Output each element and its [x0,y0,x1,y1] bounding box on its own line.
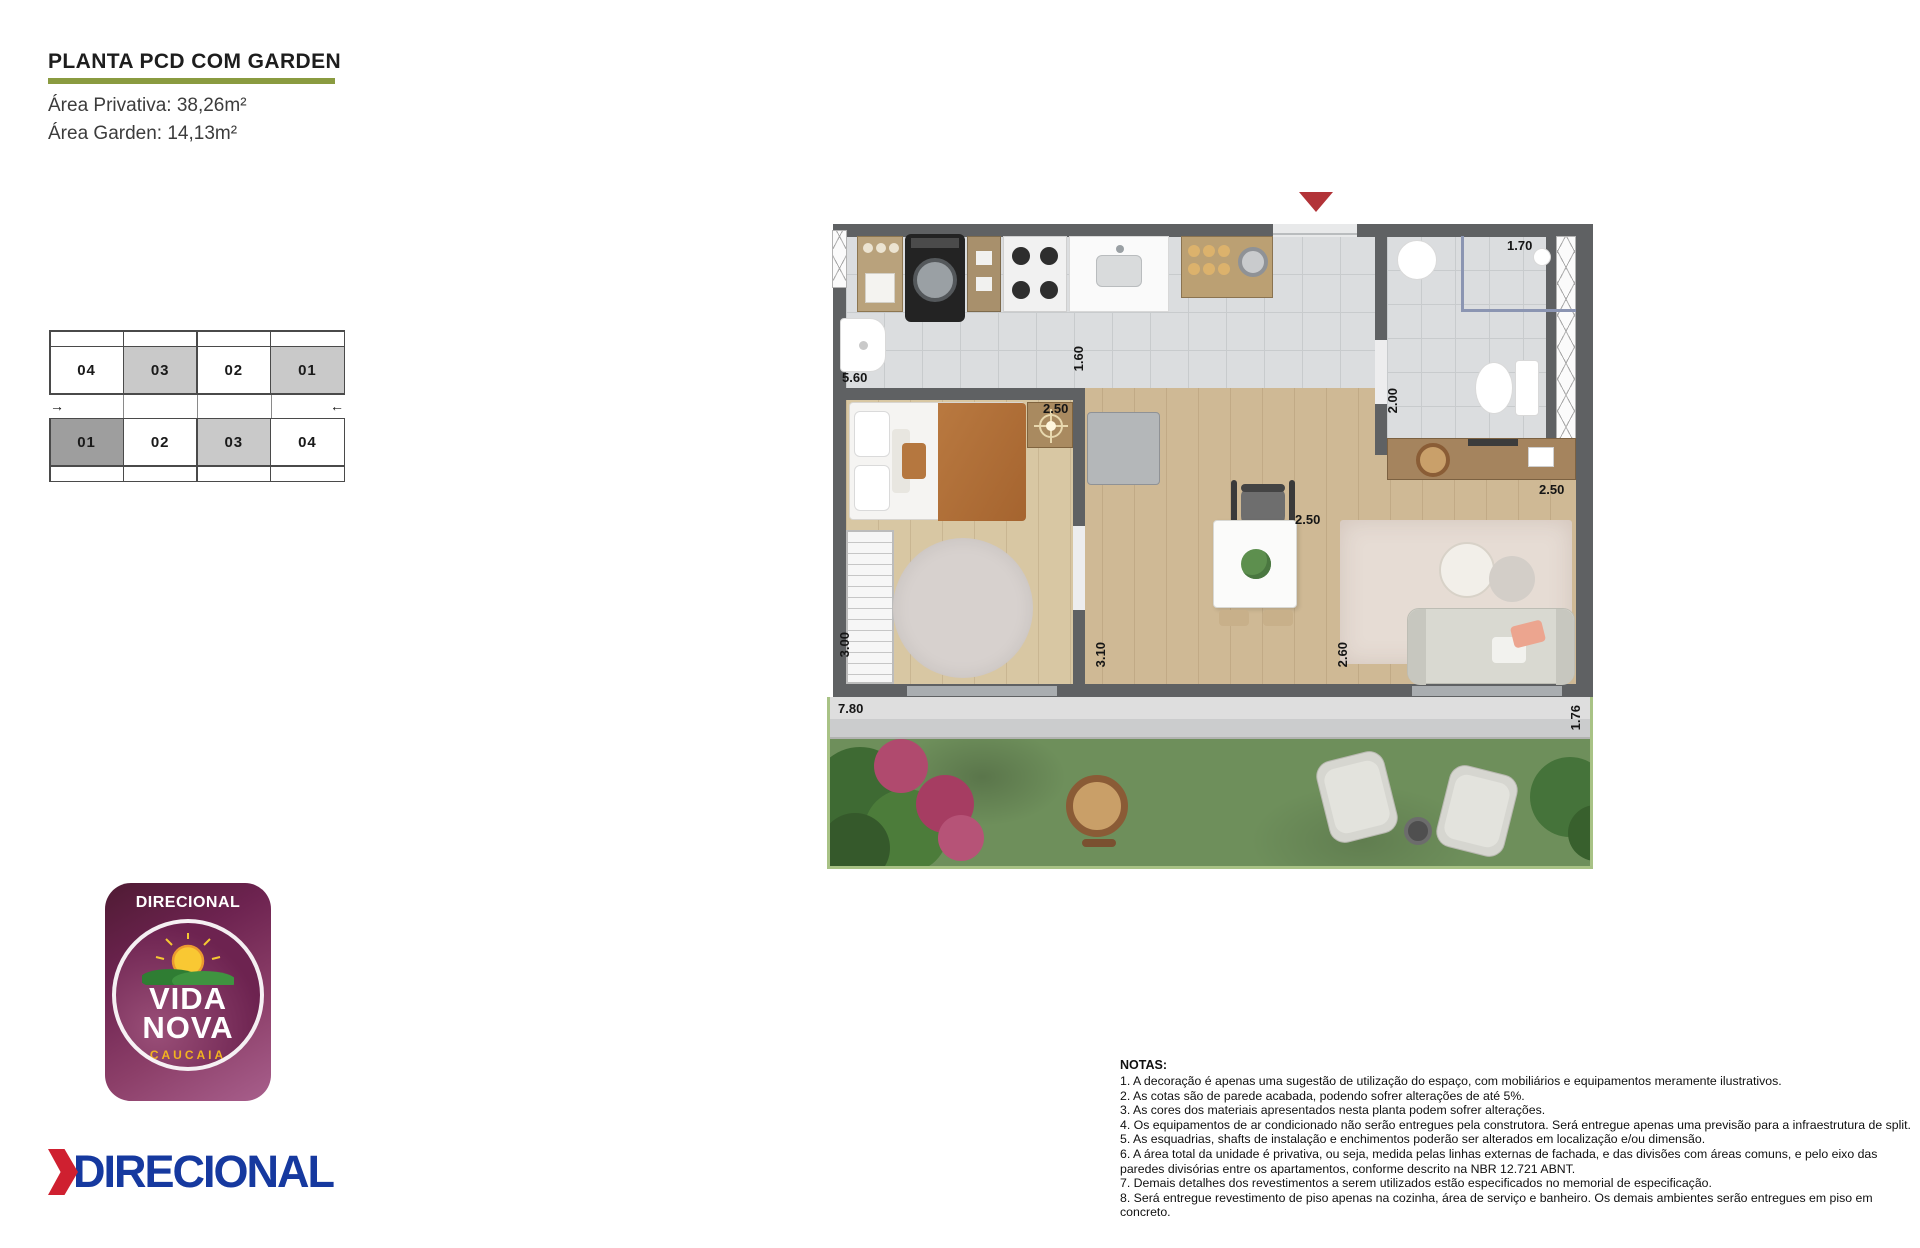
cabinet-door [976,251,992,265]
unit-cell-03: 03 [198,419,270,465]
jar [1188,245,1200,257]
locator-strip-cell [124,467,196,481]
lounge-cushion [1322,758,1392,836]
dim-hall-depth: 3.10 [1093,642,1108,667]
jar [1203,245,1215,257]
locator-lower-block: 01 02 03 04 [49,418,345,483]
decor-box [1528,447,1554,467]
garden-side-table [1404,817,1432,845]
coffee-table [1439,542,1495,598]
note-item: 5. As esquadrias, shafts de instalação e… [1120,1132,1915,1147]
plant [1241,549,1271,579]
burner [1040,247,1058,265]
locator-strip-cell [198,467,270,481]
lounge-chair [1433,762,1521,860]
flower-plant [938,815,984,861]
entry-door-opening [1273,224,1357,237]
dim-kitchen-depth: 1.60 [1071,346,1086,371]
note-item: 3. As cores dos materiais apresentados n… [1120,1103,1915,1118]
dim-garden-depth: 1.76 [1568,705,1583,730]
wicker-chair-base [1082,839,1116,847]
bedroom-door-opening [1073,526,1085,610]
direcional-wordmark-text: DIRECIONAL [73,1146,333,1198]
unit-cell-04: 04 [51,347,123,393]
basket [1416,443,1450,477]
flower-plant [874,739,928,793]
corridor-tick [271,395,272,418]
left-arrow-icon: ← [330,396,344,416]
dim-shower-width: 1.70 [1507,238,1532,253]
direcional-logo: DIRECIONAL [48,1146,333,1198]
wall-left [833,224,846,698]
jar [1188,263,1200,275]
jar [1218,263,1230,275]
bathroom-sink [1397,240,1437,280]
throw-pillow [902,443,926,479]
washer-drum [913,258,957,302]
plan-header: PLANTA PCD COM GARDEN Área Privativa: 38… [48,50,341,148]
locator-corridor: → ← [49,395,345,418]
badge-disc: VIDA NOVA CAUCAIA [112,919,264,1071]
pillow [854,465,890,511]
dim-living-depth: 2.60 [1335,642,1350,667]
wardrobe [846,530,894,684]
unit-locator-diagram: 04 03 02 01 → ← 01 02 03 04 [49,330,345,482]
vida-nova-badge-logo: DIRECIONAL VIDA NOVA CAUCAIA [105,883,271,1101]
right-arrow-icon: → [50,396,64,416]
entry-marker-icon [1299,192,1333,212]
bottle [876,243,886,253]
bed [849,402,1025,520]
jar-cabinet [1181,236,1273,298]
badge-city-text: CAUCAIA [150,1048,226,1062]
corridor-tick [123,395,124,418]
chair [1219,610,1249,626]
garden-walkway [830,719,1590,739]
note-item: 6. A área total da unidade é privativa, … [1120,1147,1915,1176]
dim-living-width: 2.50 [1539,482,1564,497]
sink-counter [1069,236,1169,312]
shower-head-icon [1533,248,1551,266]
unit-cell-01-selected: 01 [51,419,123,465]
tall-cabinet [967,236,1001,312]
locator-strip-cell [271,332,343,346]
cabinet [857,236,903,312]
locator-strip-cell [51,332,123,346]
locator-upper-block: 04 03 02 01 [49,330,345,395]
corridor-tick [197,395,198,418]
floor-plan: 5.60 1.60 1.70 2.00 2.50 2.50 2.50 3.00 … [827,190,1597,880]
shower-glass [1461,309,1576,312]
window-x-icon [832,230,847,288]
backrest [1241,484,1285,492]
unit-cell-02: 02 [198,347,270,393]
pot [1238,247,1268,277]
dim-dining-width: 2.50 [1295,512,1320,527]
note-item: 4. Os equipamentos de ar condicionado nã… [1120,1118,1915,1133]
dim-service-width: 5.60 [842,370,867,385]
badge-nova-text: NOVA [142,1014,233,1043]
cabinet-door [976,277,992,291]
page-title: PLANTA PCD COM GARDEN [48,50,341,74]
entry-door-leaf [1273,233,1357,235]
locator-strip-cell [271,467,343,481]
sofa-arm [1408,609,1426,685]
notes-title: NOTAS: [1120,1058,1915,1072]
dim-bath-depth: 2.00 [1385,388,1400,413]
faucet [1116,245,1124,253]
chair [1263,610,1293,626]
note-item: 7. Demais detalhes dos revestimentos a s… [1120,1176,1915,1191]
wall-right [1576,224,1593,698]
dim-garden-width: 7.80 [838,701,863,716]
side-table [1489,556,1535,602]
jar [1218,245,1230,257]
dim-bedroom-width: 2.50 [1043,401,1068,416]
round-rug [893,538,1033,678]
floor-plan-sheet: PLANTA PCD COM GARDEN Área Privativa: 38… [0,0,1920,1248]
notes-section: NOTAS: 1. A decoração é apenas uma suges… [1120,1058,1915,1220]
bottle [863,243,873,253]
unit-cell-04: 04 [271,419,343,465]
towels [865,273,895,303]
area-privativa-label: Área Privativa: 38,26m² [48,92,341,120]
drain [859,341,868,350]
sideboard [1387,438,1576,480]
unit-cell-01: 01 [271,347,343,393]
dim-bedroom-depth: 3.00 [837,632,852,657]
wall-bathroom-left [1375,224,1387,454]
title-underline [48,78,335,84]
note-item: 2. As cotas são de parede acabada, poden… [1120,1089,1915,1104]
wicker-chair [1066,775,1128,837]
pillow [854,411,890,457]
lounge-chair [1313,748,1401,846]
burner [1012,247,1030,265]
toilet-tank [1515,360,1539,416]
burner [1040,281,1058,299]
unit-cell-02: 02 [124,419,196,465]
locator-strip-cell [124,332,196,346]
kitchen-sink [1096,255,1142,287]
locator-strip-cell [51,467,123,481]
living-window-opening [1412,686,1562,696]
fridge [1087,412,1160,485]
jar [1203,263,1215,275]
shaft-window-x-icon [1556,236,1576,442]
bedroom-window-opening [907,686,1057,696]
washing-machine [905,234,965,322]
badge-brand-text: DIRECIONAL [105,894,271,912]
garden: 7.80 1.76 [827,697,1593,869]
note-item: 8. Será entregue revestimento de piso ap… [1120,1191,1915,1220]
sun-hills-icon [142,933,234,985]
wall-bedroom-top [846,388,1085,400]
blanket [938,403,1026,521]
decor-slab [1468,439,1518,446]
locator-strip-cell [198,332,270,346]
dining-table [1213,520,1297,608]
bottle [889,243,899,253]
burner [1012,281,1030,299]
area-garden-label: Área Garden: 14,13m² [48,120,341,148]
stove [1003,236,1067,312]
note-item: 1. A decoração é apenas uma sugestão de … [1120,1074,1915,1089]
sofa [1407,608,1575,684]
lounge-cushion [1442,772,1512,850]
toilet-bowl [1475,362,1513,414]
unit-cell-03: 03 [124,347,196,393]
garden-sidewalk [830,697,1590,719]
shower-glass [1461,236,1464,312]
laundry-tank [840,318,886,372]
garden-grass [830,739,1590,866]
washer-panel [911,238,959,248]
